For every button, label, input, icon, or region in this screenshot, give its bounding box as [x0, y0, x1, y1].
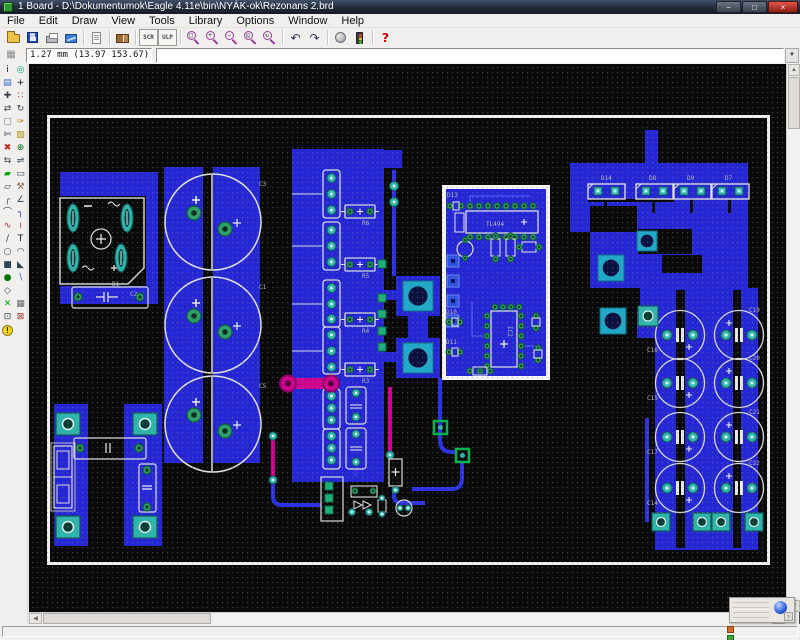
hole-tool[interactable]: ◇ [1, 285, 14, 298]
menu-window[interactable]: Window [281, 14, 334, 28]
library-use-button[interactable] [113, 29, 132, 46]
group-tool-icon: ▢ [3, 116, 12, 129]
errors-tool-icon: ⊠ [17, 311, 25, 324]
eagle-board-icon [3, 2, 13, 12]
mirror-tool-icon: ⇄ [4, 103, 12, 116]
errors-tool[interactable]: ⊠ [14, 311, 27, 324]
warning-tool[interactable]: ! [1, 324, 27, 337]
status-field [2, 626, 798, 637]
text-tool-icon: T [18, 233, 24, 246]
info-tool-icon: i [6, 64, 9, 77]
smash-tool[interactable]: ⚒ [14, 181, 27, 194]
ripup-tool-icon: ∿ [4, 220, 12, 233]
copy-tool-icon: ∷ [18, 90, 24, 103]
circle-tool-icon: ○ [4, 246, 12, 259]
stop-button[interactable] [331, 29, 350, 46]
menu-draw[interactable]: Draw [65, 14, 105, 28]
move-tool-icon: ✚ [4, 90, 12, 103]
delete-tool-icon: ✖ [4, 142, 12, 155]
text-tool[interactable]: T [14, 233, 27, 246]
toolbar-separator [180, 30, 181, 45]
tray-orange-icon [727, 626, 734, 633]
menu-tools[interactable]: Tools [142, 14, 182, 28]
paste-tool-icon: ▨ [16, 129, 25, 142]
tool-palette: i◎▤+✚∷⇄↻▢✑✄▨✖⊕⇆⇌▰▭▱⚒╭∠⌒┐∿≀∕T○◠■◣●∖◇✕▦⊡⊠! [0, 64, 28, 624]
via-tool-icon: ● [4, 272, 12, 285]
miter-tool-icon: ╭ [5, 194, 10, 207]
name-tool-icon: ▭ [16, 168, 25, 181]
add-tool[interactable]: ⊕ [14, 142, 27, 155]
mirror-tool[interactable]: ⇄ [1, 103, 14, 116]
library-use-icon [116, 34, 129, 43]
coordinate-row: ▦ 1.27 mm (13.97 153.67) ▼ [0, 47, 800, 64]
ulp-button[interactable]: ULP [158, 29, 177, 46]
chevron-down-icon[interactable]: ▼ [785, 48, 799, 63]
cut-tool[interactable]: ✄ [1, 129, 14, 142]
show-tool-icon: ◎ [17, 64, 25, 77]
arc-tool[interactable]: ◠ [14, 246, 27, 259]
vertical-scroll-thumb[interactable] [788, 77, 800, 129]
value-tool[interactable]: ▱ [1, 181, 14, 194]
help-icon: ? [382, 31, 389, 45]
action-toolbar: SCRULP□+−◱↻↶↷? [0, 28, 800, 47]
split-tool-icon: ∠ [16, 194, 24, 207]
copy-tool[interactable]: ∷ [14, 90, 27, 103]
add-tool-icon: ⊕ [17, 142, 25, 155]
optimize-tool-icon: ⌒ [3, 207, 12, 220]
menu-bar: FileEditDrawViewToolsLibraryOptionsWindo… [0, 14, 800, 28]
meander-tool[interactable]: ≀ [14, 220, 27, 233]
smash-tool-icon: ⚒ [16, 181, 24, 194]
arc-tool-icon: ◠ [17, 246, 25, 259]
zoom-fit-icon: □ [187, 31, 201, 45]
grid-icon[interactable]: ▦ [3, 48, 19, 62]
gateswap-tool[interactable]: ⇌ [14, 155, 27, 168]
zoom-select-button[interactable]: ◱ [241, 29, 260, 46]
redo-button[interactable]: ↷ [305, 29, 324, 46]
mark-tool-icon: + [17, 77, 25, 90]
save-icon [27, 32, 38, 43]
meander-tool-icon: ≀ [19, 220, 22, 233]
help-button[interactable]: ? [376, 29, 395, 46]
miter-tool[interactable]: ╭ [1, 194, 14, 207]
redo-icon: ↷ [309, 31, 319, 45]
toolbar-separator [282, 30, 283, 45]
optimize-tool[interactable]: ⌒ [1, 207, 14, 220]
display-tool-icon: ▤ [3, 77, 12, 90]
status-bar [0, 624, 800, 640]
horizontal-scrollbar[interactable]: ◀ ▶ [29, 612, 786, 624]
command-line-input[interactable] [156, 48, 784, 63]
undo-button[interactable]: ↶ [286, 29, 305, 46]
rect-tool[interactable]: ■ [1, 259, 14, 272]
drc-tool-icon: ⊡ [4, 311, 12, 324]
print-button[interactable] [42, 29, 61, 46]
spacer [14, 285, 27, 298]
cut-tool-icon: ✄ [4, 129, 12, 142]
pcb-drawing: D1C2C3C1C5R6R5R4R3D14D8D9D7C16C15C17C14C… [29, 64, 786, 612]
scroll-left-icon[interactable]: ◀ [29, 613, 42, 624]
route-tool-icon: ┐ [18, 207, 23, 220]
toolbar-separator [135, 30, 136, 45]
run-script-icon [92, 32, 101, 44]
zoom-in-button[interactable]: + [203, 29, 222, 46]
lock-tool[interactable]: ▰ [1, 168, 14, 181]
zoom-redraw-button[interactable]: ↻ [260, 29, 279, 46]
group-tool[interactable]: ▢ [1, 116, 14, 129]
wire-tool-icon: ∕ [6, 233, 9, 246]
rotate-tool[interactable]: ↻ [14, 103, 27, 116]
open-button[interactable] [4, 29, 23, 46]
toolbar-separator [372, 30, 373, 45]
tray-green-icon [727, 635, 734, 640]
zoom-select-icon: ◱ [244, 31, 258, 45]
script-button[interactable]: SCR [139, 29, 158, 46]
go-icon [356, 32, 363, 44]
toolbar-separator [327, 30, 328, 45]
menu-file[interactable]: File [0, 14, 32, 28]
horizontal-scroll-thumb[interactable] [43, 613, 211, 624]
gateswap-tool-icon: ⇌ [17, 155, 25, 168]
script-icon: SCR [142, 34, 155, 42]
rect-tool-icon: ■ [3, 259, 12, 272]
close-button[interactable]: × [768, 1, 798, 13]
stop-icon [335, 32, 346, 43]
toolbar-separator [83, 30, 84, 45]
pinswap-tool-icon: ⇆ [4, 155, 12, 168]
tool-palette-grid: i◎▤+✚∷⇄↻▢✑✄▨✖⊕⇆⇌▰▭▱⚒╭∠⌒┐∿≀∕T○◠■◣●∖◇✕▦⊡⊠! [0, 64, 28, 337]
zoom-out-icon: − [225, 31, 239, 45]
delete-tool[interactable]: ✖ [1, 142, 14, 155]
split-tool[interactable]: ∠ [14, 194, 27, 207]
minimize-button[interactable]: − [716, 1, 741, 13]
zoom-in-icon: + [206, 31, 220, 45]
ratsnest-tool-icon: ✕ [4, 298, 12, 311]
title-bar[interactable]: 1 Board - D:\Dokumentumok\Eagle 4.11e\bi… [0, 0, 800, 14]
ulp-icon: ULP [161, 34, 174, 42]
widget-list-lines [733, 602, 769, 620]
display-tool[interactable]: ▤ [1, 77, 14, 90]
vertical-scrollbar[interactable]: ▲ ▼ [786, 64, 800, 612]
menu-library[interactable]: Library [182, 14, 230, 28]
polygon-tool[interactable]: ◣ [14, 259, 27, 272]
signal-tool-icon: ∖ [18, 272, 24, 285]
open-icon [7, 34, 20, 43]
toolbar-separator [109, 30, 110, 45]
scroll-up-icon[interactable]: ▲ [788, 64, 800, 76]
show-tool[interactable]: ◎ [14, 64, 27, 77]
menu-options[interactable]: Options [229, 14, 281, 28]
go-button[interactable] [350, 29, 369, 46]
eagle-window: 1 Board - D:\Dokumentumok\Eagle 4.11e\bi… [0, 0, 800, 640]
cam-processor-icon [65, 34, 77, 43]
save-button[interactable] [23, 29, 42, 46]
drc-tool[interactable]: ⊡ [1, 311, 14, 324]
maximize-button[interactable]: □ [742, 1, 767, 13]
print-icon [46, 36, 58, 43]
run-script-button[interactable] [87, 29, 106, 46]
ripup-tool[interactable]: ∿ [1, 220, 14, 233]
warning-tool-icon: ! [2, 325, 13, 336]
auto-tool[interactable]: ▦ [14, 298, 27, 311]
lock-tool-icon: ▰ [4, 168, 11, 181]
window-title: 1 Board - D:\Dokumentumok\Eagle 4.11e\bi… [18, 1, 334, 13]
hole-tool-icon: ◇ [4, 285, 11, 298]
change-tool[interactable]: ✑ [14, 116, 27, 129]
zoom-fit-button[interactable]: □ [184, 29, 203, 46]
zoom-redraw-icon: ↻ [263, 31, 277, 45]
menu-view[interactable]: View [104, 14, 142, 28]
via-tool[interactable]: ● [1, 272, 14, 285]
value-tool-icon: ▱ [4, 181, 11, 194]
circle-tool[interactable]: ○ [1, 246, 14, 259]
menu-help[interactable]: Help [334, 14, 371, 28]
change-tool-icon: ✑ [17, 116, 25, 129]
move-tool[interactable]: ✚ [1, 90, 14, 103]
rotate-tool-icon: ↻ [17, 103, 25, 116]
mark-tool[interactable]: + [14, 77, 27, 90]
ratsnest-tool[interactable]: ✕ [1, 298, 14, 311]
board-canvas[interactable]: D1C2C3C1C5R6R5R4R3D14D8D9D7C16C15C17C14C… [29, 64, 786, 612]
signal-tool[interactable]: ∖ [14, 272, 27, 285]
paste-tool[interactable]: ▨ [14, 129, 27, 142]
route-tool[interactable]: ┐ [14, 207, 27, 220]
coordinate-display: 1.27 mm (13.97 153.67) [26, 48, 152, 63]
auto-tool-icon: ▦ [16, 298, 25, 311]
wire-tool[interactable]: ∕ [1, 233, 14, 246]
polygon-tool-icon: ◣ [17, 259, 24, 272]
info-tool[interactable]: i [1, 64, 14, 77]
background-widget: › [729, 597, 795, 623]
name-tool[interactable]: ▭ [14, 168, 27, 181]
zoom-out-button[interactable]: − [222, 29, 241, 46]
widget-more-button[interactable]: › [784, 612, 793, 621]
undo-icon: ↶ [290, 31, 300, 45]
cam-processor-button[interactable] [61, 29, 80, 46]
menu-edit[interactable]: Edit [32, 14, 65, 28]
pinswap-tool[interactable]: ⇆ [1, 155, 14, 168]
